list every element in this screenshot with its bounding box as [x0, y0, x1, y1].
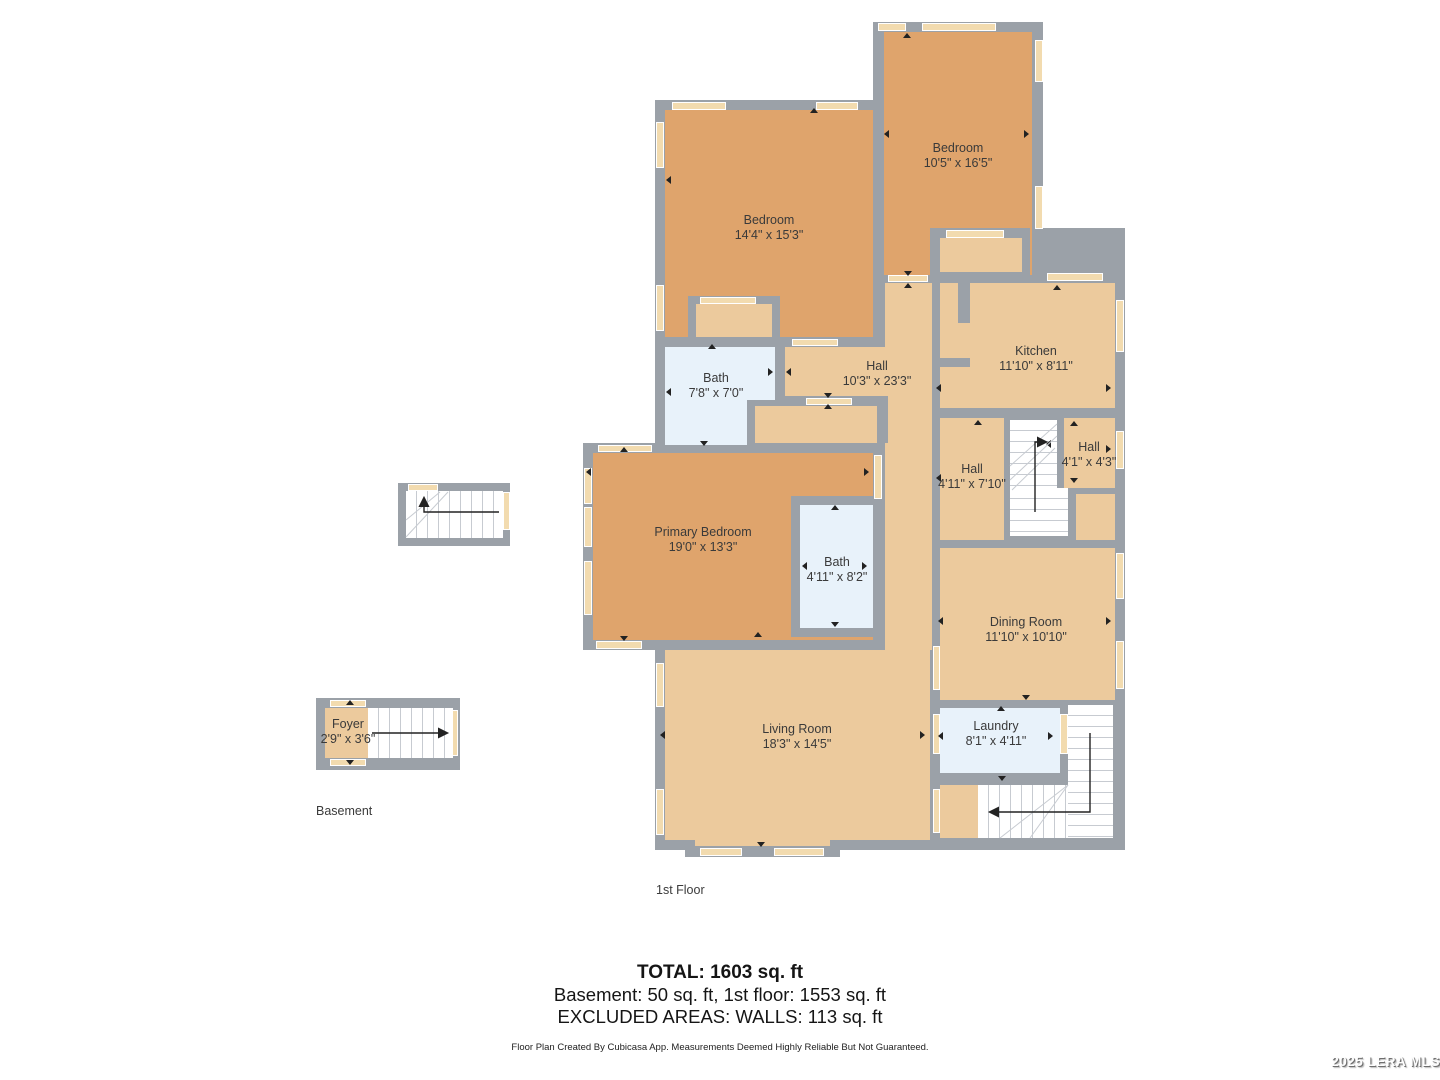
stairs-bottom-right [978, 785, 1068, 838]
door-opening-marker [888, 275, 928, 282]
window-marker [878, 23, 906, 31]
first-floor-caption: 1st Floor [656, 883, 705, 897]
window-marker [596, 641, 642, 649]
room-name: Laundry [896, 719, 1096, 734]
door-swing-icon [754, 632, 762, 637]
window-marker [672, 102, 726, 110]
room-hall-main [885, 283, 932, 347]
window-marker [656, 285, 664, 331]
room-dimensions: 4'11" x 7'10" [872, 477, 1072, 492]
door-swing-icon [1024, 130, 1029, 138]
passage [940, 785, 978, 838]
window-marker [584, 561, 592, 615]
door-swing-icon [810, 108, 818, 113]
door-swing-icon [666, 176, 671, 184]
window-marker [1035, 40, 1043, 82]
door-swing-icon [708, 344, 716, 349]
disclaimer-text: Floor Plan Created By Cubicasa App. Meas… [0, 1042, 1440, 1054]
room-dimensions: 18'3" x 14'5" [697, 737, 897, 752]
door-swing-icon [757, 842, 765, 847]
room-name: Primary Bedroom [603, 525, 803, 540]
door-swing-icon [1106, 384, 1111, 392]
room-dimensions: 8'1" x 4'11" [896, 734, 1096, 749]
room-label-bath-primary: Bath 4'11" x 8'2" [737, 555, 937, 585]
room-dimensions: 14'4" x 15'3" [669, 228, 869, 243]
room-name: Bedroom [858, 141, 1058, 156]
room-dimensions: 10'5" x 16'5" [858, 156, 1058, 171]
room-name: Living Room [697, 722, 897, 737]
window-marker [1116, 553, 1124, 599]
stairs-basement-upper [406, 491, 503, 538]
door-swing-icon [884, 130, 889, 138]
room-name: Dining Room [926, 615, 1126, 630]
room-name: Kitchen [936, 344, 1136, 359]
closet [696, 304, 772, 337]
door-swing-icon [620, 447, 628, 452]
door-swing-icon [346, 760, 354, 765]
room-label-dining: Dining Room 11'10" x 10'10" [926, 615, 1126, 645]
door-opening-marker [946, 230, 1004, 238]
window-marker [656, 789, 664, 835]
window-marker [774, 848, 824, 856]
room-dimensions: 11'10" x 8'11" [936, 359, 1136, 374]
area-breakdown-text: Basement: 50 sq. ft, 1st floor: 1553 sq.… [0, 984, 1440, 1006]
area-summary: TOTAL: 1603 sq. ft Basement: 50 sq. ft, … [0, 962, 1440, 1054]
door-opening-marker [1047, 273, 1103, 281]
door-opening-marker [933, 789, 940, 833]
door-opening-marker [408, 484, 438, 491]
room-label-bedroom-right: Bedroom 10'5" x 16'5" [858, 141, 1058, 171]
window-marker [656, 122, 664, 168]
mls-watermark: 2025 LERA MLS [1324, 1054, 1440, 1069]
door-swing-icon [700, 441, 708, 446]
window-marker [922, 23, 996, 31]
hall-tiny-extension [1076, 494, 1115, 540]
room-label-kitchen: Kitchen 11'10" x 8'11" [936, 344, 1136, 374]
door-swing-icon [904, 283, 912, 288]
room-dimensions: 2'9" x 3'6" [248, 732, 448, 747]
room-label-foyer: Foyer 2'9" x 3'6" [248, 717, 448, 747]
closet [940, 238, 1022, 272]
door-swing-icon [620, 636, 628, 641]
room-label-bedroom-left: Bedroom 14'4" x 15'3" [669, 213, 869, 243]
basement-caption: Basement [316, 804, 372, 818]
room-dimensions: 4'11" x 8'2" [737, 570, 937, 585]
wall-stub [958, 283, 970, 323]
room-dimensions: 10'3" x 23'3" [777, 374, 977, 389]
door-swing-icon [660, 731, 665, 739]
room-name: Bedroom [669, 213, 869, 228]
door-swing-icon [824, 404, 832, 409]
room-label-laundry: Laundry 8'1" x 4'11" [896, 719, 1096, 749]
door-swing-icon [586, 468, 591, 476]
door-swing-icon [1070, 421, 1078, 426]
door-opening-marker [503, 492, 510, 530]
room-dimensions: 11'10" x 10'10" [926, 630, 1126, 645]
door-opening-marker [452, 710, 458, 756]
floor-plan-page: { "floor_labels": { "basement": "Basemen… [0, 0, 1440, 1080]
door-swing-icon [824, 393, 832, 398]
window-marker [700, 848, 742, 856]
stairs-middle [1010, 488, 1068, 536]
excluded-areas-text: EXCLUDED AREAS: WALLS: 113 sq. ft [0, 1006, 1440, 1028]
window-marker [816, 102, 858, 110]
room-label-living: Living Room 18'3" x 14'5" [697, 722, 897, 752]
door-swing-icon [904, 271, 912, 276]
door-swing-icon [903, 33, 911, 38]
window-marker [1035, 186, 1043, 229]
window-marker [656, 663, 664, 707]
room-dimensions: 4'1" x 4'3" [989, 455, 1189, 470]
door-swing-icon [346, 700, 354, 705]
door-swing-icon [974, 420, 982, 425]
hall-nook [755, 406, 877, 443]
door-opening-marker [700, 297, 756, 304]
total-area-text: TOTAL: 1603 sq. ft [0, 962, 1440, 984]
floor-plan: Bedroom 10'5" x 16'5" Bedroom 14'4" x 15… [0, 0, 1440, 1080]
room-hall-main [888, 396, 932, 443]
window-marker [584, 507, 592, 547]
door-swing-icon [997, 706, 1005, 711]
door-swing-icon [1053, 285, 1061, 290]
room-label-primary-bedroom: Primary Bedroom 19'0" x 13'3" [603, 525, 803, 555]
room-name: Bath [737, 555, 937, 570]
door-swing-icon [831, 505, 839, 510]
room-name: Foyer [248, 717, 448, 732]
door-opening-marker [933, 646, 940, 690]
door-opening-marker [792, 339, 838, 346]
room-dimensions: 19'0" x 13'3" [603, 540, 803, 555]
door-swing-icon [998, 776, 1006, 781]
room-label-hall-tiny: Hall 4'1" x 4'3" [989, 440, 1189, 470]
door-swing-icon [1022, 695, 1030, 700]
door-swing-icon [831, 622, 839, 627]
room-name: Hall [989, 440, 1189, 455]
window-marker [1116, 641, 1124, 689]
door-swing-icon [864, 468, 869, 476]
